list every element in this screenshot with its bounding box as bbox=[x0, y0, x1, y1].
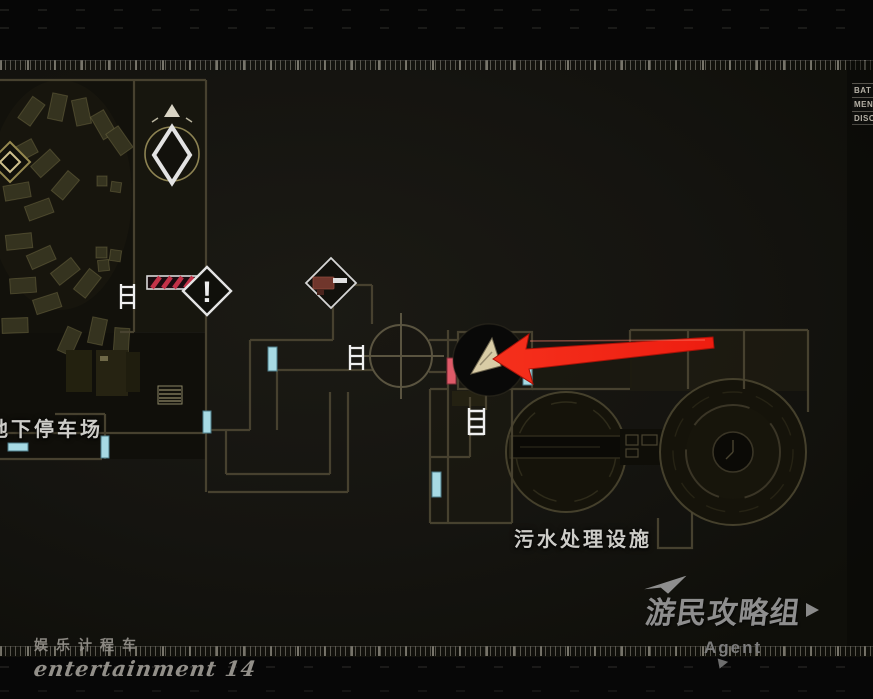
right-edge-shade bbox=[847, 61, 873, 646]
watermark-logo-text: 游民攻略组 bbox=[643, 588, 803, 632]
settling-tank-left bbox=[506, 392, 626, 512]
watermark-bottom-left: 娱乐计程车 entertainment 14 bbox=[34, 635, 256, 681]
area-label-sewage: 污水处理设施 bbox=[514, 523, 652, 552]
watermark-sub-text: Agent bbox=[704, 638, 866, 658]
door-marker-cyan bbox=[203, 411, 211, 433]
door-marker-cyan bbox=[8, 443, 28, 451]
hud-menu-panel: BAT MEN DISC bbox=[852, 83, 873, 125]
triangle-down-icon bbox=[715, 659, 728, 671]
settling-tank-right bbox=[660, 379, 806, 525]
watermark-bottom-right: 游民攻略组 Agent bbox=[646, 588, 866, 669]
door-marker-cyan bbox=[268, 347, 277, 371]
triangle-right-icon bbox=[806, 603, 819, 617]
watermark-en-text: entertainment 14 bbox=[32, 656, 258, 681]
game-map-screen: ! BAT MEN bbox=[0, 0, 873, 699]
stairs-icon bbox=[158, 386, 182, 404]
door-marker-cyan bbox=[432, 472, 441, 497]
area-label-parking: 地下停车场 bbox=[0, 413, 103, 442]
ladder-icon bbox=[350, 345, 363, 370]
rotary-room bbox=[358, 313, 444, 399]
hud-menu-item[interactable]: MEN bbox=[852, 97, 873, 111]
hud-menu-item[interactable]: BAT bbox=[852, 83, 873, 97]
watermark-cn-text: 娱乐计程车 bbox=[34, 635, 256, 655]
hud-menu-item[interactable]: DISC bbox=[852, 111, 873, 125]
tank-connector bbox=[620, 429, 666, 465]
svg-text:!: ! bbox=[202, 276, 212, 309]
weapon-item-icon bbox=[306, 258, 356, 308]
storage-structures bbox=[66, 350, 140, 396]
